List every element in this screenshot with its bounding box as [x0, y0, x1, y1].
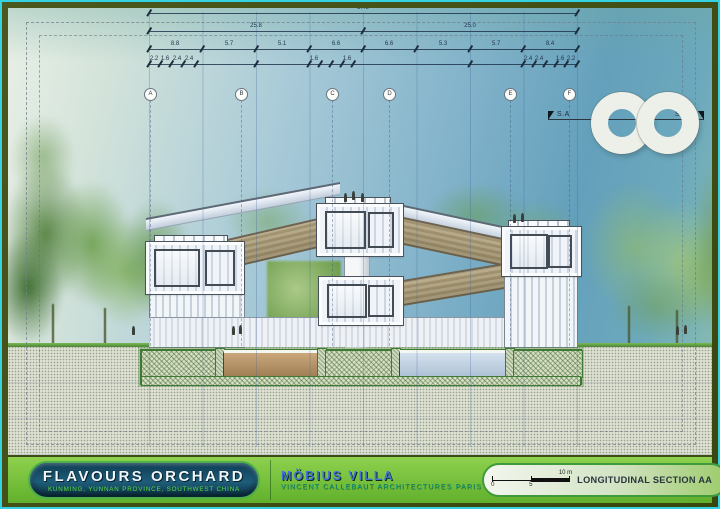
dimension-label: 2.2: [558, 56, 584, 63]
dimension-label: 6.6: [376, 41, 402, 48]
scale-ten-label: 10 m: [559, 470, 572, 476]
scale-bar: 0 5 10 m: [492, 472, 570, 488]
dimension-label: 25.8: [243, 23, 269, 30]
scale-tick: [569, 476, 570, 482]
villa-title-block: MÖBIUS VILLA VINCENT CALLEBAUT ARCHITECT…: [281, 469, 482, 491]
dimension-line: [149, 64, 577, 65]
grid-dash-line: [569, 100, 570, 346]
grid-dash-line: [150, 100, 151, 346]
dimension-line: [149, 13, 577, 14]
grid-dash-line: [389, 100, 390, 346]
titlebar-divider: [270, 460, 271, 500]
title-bar: FLAVOURS ORCHARD KUNMING, YUNNAN PROVINC…: [8, 455, 712, 503]
villa-name: MÖBIUS VILLA: [281, 469, 482, 483]
scale-five-label: 5: [529, 482, 532, 488]
dimension-label: 8.8: [162, 41, 188, 48]
dimension-label: 5.7: [216, 41, 242, 48]
dimension-label: 6.6: [323, 41, 349, 48]
scale-bar-segment: [531, 478, 570, 482]
dimension-tick: [574, 9, 580, 17]
grid-dash-line: [510, 100, 511, 346]
dimension-label: 5.3: [430, 41, 456, 48]
drawing-title-pill: 0 5 10 m LONGITUDINAL SECTION AA: [482, 463, 720, 497]
section-drawing: S.A S.A' 57.325.825.08.85.75.16.66.65.35…: [8, 8, 712, 455]
dimension-label: 8.4: [537, 41, 563, 48]
dimension-label: 1.6: [301, 56, 327, 63]
grid-bubble: D: [383, 88, 396, 101]
grid-bubble: F: [563, 88, 576, 101]
dimension-tick: [574, 45, 580, 53]
grid-dash-line: [332, 100, 333, 346]
infinity-logo-right-ring: [637, 92, 699, 154]
dimension-label: 5.7: [483, 41, 509, 48]
grid-bubble: A: [144, 88, 157, 101]
dimension-label: 2.4: [176, 56, 202, 63]
grid-dash-line: [241, 100, 242, 346]
architect-name: VINCENT CALLEBAUT ARCHITECTURES PARIS: [281, 484, 482, 491]
grid-bubble: E: [504, 88, 517, 101]
project-title-pill: FLAVOURS ORCHARD KUNMING, YUNNAN PROVINC…: [28, 461, 260, 499]
project-location: KUNMING, YUNNAN PROVINCE, SOUTHWEST CHIN…: [48, 486, 240, 493]
dimension-label: 57.3: [350, 8, 376, 12]
project-name: FLAVOURS ORCHARD: [43, 468, 245, 485]
section-flag-left: [548, 111, 554, 120]
dimension-tick: [574, 27, 580, 35]
annotation-layer: S.A S.A' 57.325.825.08.85.75.16.66.65.35…: [8, 8, 712, 455]
drawing-title: LONGITUDINAL SECTION AA: [577, 475, 712, 485]
dimension-label: 5.1: [269, 41, 295, 48]
section-flag-right: [698, 111, 704, 120]
dimension-label: 1.6: [334, 56, 360, 63]
grid-bubble: B: [235, 88, 248, 101]
dimension-label: 25.0: [457, 23, 483, 30]
scale-zero-label: 0: [491, 482, 494, 488]
grid-bubble: C: [326, 88, 339, 101]
section-marker-label-left: S.A: [557, 111, 570, 118]
presentation-sheet: S.A S.A' 57.325.825.08.85.75.16.66.65.35…: [0, 0, 720, 509]
